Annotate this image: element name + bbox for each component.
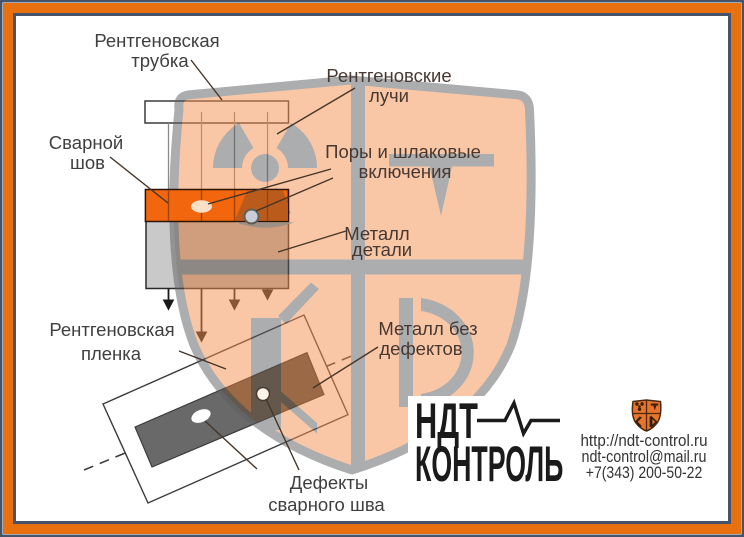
svg-text:пленка: пленка — [81, 343, 142, 364]
svg-text:Дефекты: Дефекты — [290, 472, 368, 493]
svg-text:+7(343) 200-50-22: +7(343) 200-50-22 — [586, 464, 702, 482]
svg-text:Рентгеновские: Рентгеновские — [326, 65, 451, 86]
svg-text:Рентгеновская: Рентгеновская — [94, 30, 219, 51]
svg-text:Сварной: Сварной — [49, 132, 123, 153]
svg-text:Рентгеновская: Рентгеновская — [49, 319, 174, 340]
svg-text:дефектов: дефектов — [379, 338, 462, 359]
svg-text:Металл без: Металл без — [378, 318, 477, 339]
svg-text:включения: включения — [359, 161, 452, 182]
svg-text:шов: шов — [70, 152, 105, 173]
svg-text:лучи: лучи — [369, 85, 409, 106]
svg-text:детали: детали — [352, 239, 412, 260]
svg-text:сварного шва: сварного шва — [268, 494, 385, 515]
svg-text:КОНТРОЛЬ: КОНТРОЛЬ — [415, 437, 563, 492]
svg-text:Поры и шлаковые: Поры и шлаковые — [325, 141, 481, 162]
svg-text:трубка: трубка — [131, 50, 189, 71]
